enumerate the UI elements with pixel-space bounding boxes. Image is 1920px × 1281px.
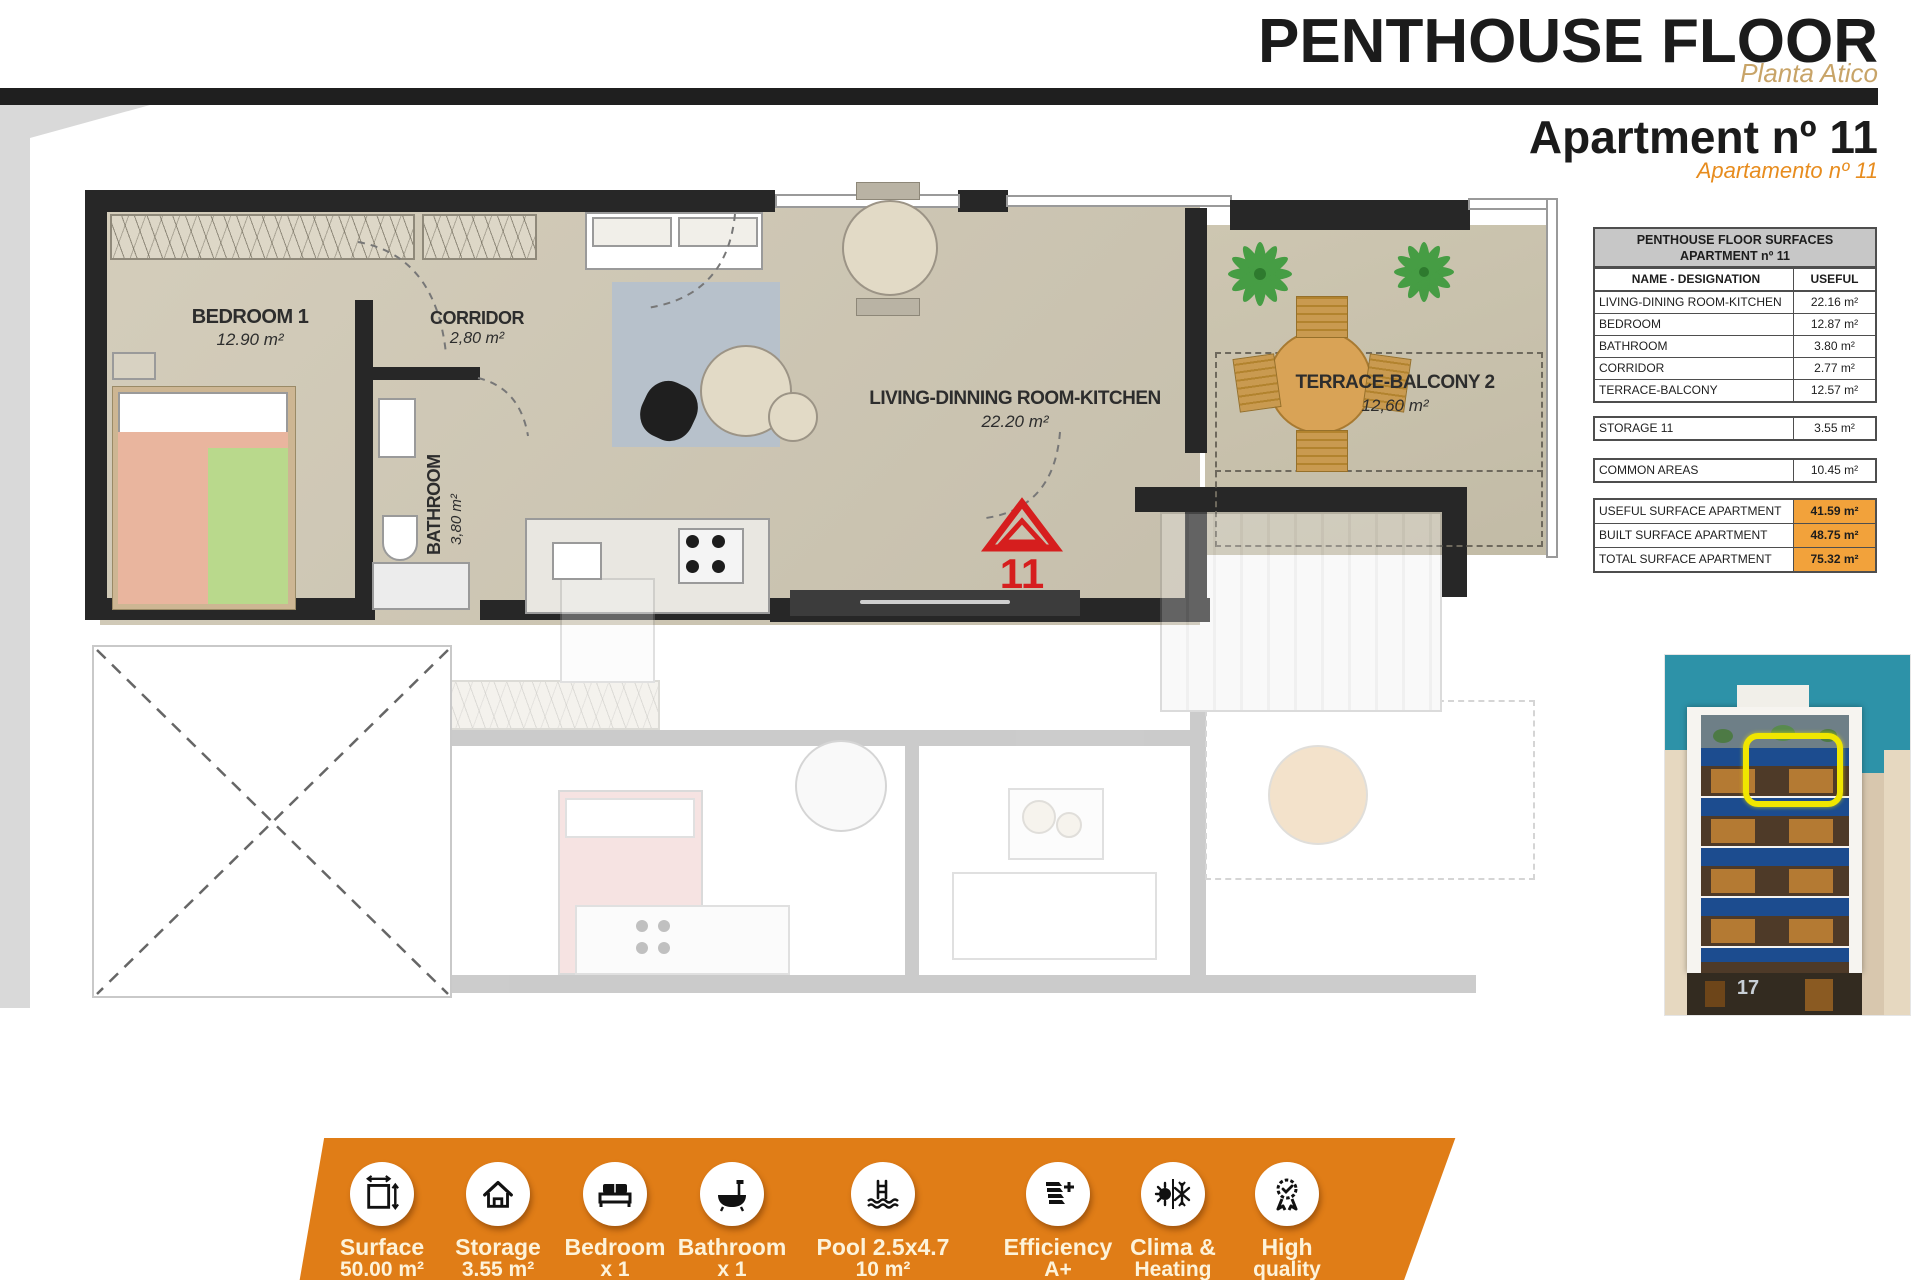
features-banner: Surface 50.00 m² Storage 3.55 m² Bedroom…	[295, 1138, 1460, 1280]
bedroom-icon	[595, 1174, 635, 1214]
building-floor	[1701, 848, 1849, 898]
surface-icon	[363, 1175, 401, 1213]
room-area-terrace: 12,60 m²	[1255, 396, 1535, 416]
surfaces-main-block: PENTHOUSE FLOOR SURFACES APARTMENT nº 11…	[1593, 227, 1877, 403]
room-area-bathroom: 3,80 m²	[448, 415, 465, 545]
page: { "header": { "title": "PENTHOUSE FLOOR"…	[0, 0, 1920, 1280]
room-label-bathroom: BATHROOM	[424, 395, 445, 555]
room-area-living: 22.20 m²	[850, 412, 1180, 432]
penthouse-highlight-box	[1743, 733, 1843, 807]
building-ground-floor	[1687, 973, 1862, 1015]
room-label-terrace: TERRACE-BALCONY 2	[1255, 372, 1535, 394]
storage-block: STORAGE 113.55 m²	[1593, 416, 1877, 441]
pool-icon	[863, 1174, 903, 1214]
table-row: BUILT SURFACE APARTMENT48.75 m²	[1595, 523, 1875, 547]
surfaces-table-title: PENTHOUSE FLOOR SURFACES APARTMENT nº 11	[1595, 229, 1875, 268]
building-elevation-image: 17	[1665, 655, 1910, 1015]
building-floor	[1701, 898, 1849, 948]
table-row: BEDROOM12.87 m²	[1595, 313, 1875, 335]
entrance-marker-number: 11	[982, 550, 1062, 598]
high-quality-icon	[1267, 1174, 1307, 1214]
table-row: COMMON AREAS10.45 m²	[1595, 460, 1875, 481]
table-row: USEFUL SURFACE APARTMENT41.59 m²	[1595, 500, 1875, 523]
lower-floor-ghost	[0, 0, 1920, 1280]
table-row: BATHROOM3.80 m²	[1595, 335, 1875, 357]
table-row: STORAGE 113.55 m²	[1595, 418, 1875, 439]
room-area-corridor: 2,80 m²	[412, 330, 542, 348]
efficiency-icon	[1038, 1174, 1078, 1214]
bathroom-icon	[712, 1174, 752, 1214]
room-label-corridor: CORRIDOR	[412, 308, 542, 329]
building-street-number: 17	[1723, 977, 1773, 1000]
clima-heating-icon	[1153, 1174, 1193, 1214]
room-label-living: LIVING-DINNING ROOM-KITCHEN	[850, 388, 1180, 410]
neighbor-building	[1884, 750, 1910, 1015]
common-areas-block: COMMON AREAS10.45 m²	[1593, 458, 1877, 483]
room-area-bedroom: 12.90 m²	[145, 330, 355, 350]
building-floor	[1701, 948, 1849, 973]
table-row: TOTAL SURFACE APARTMENT75.32 m²	[1595, 547, 1875, 571]
table-row: TERRACE-BALCONY12.57 m²	[1595, 379, 1875, 401]
table-row: LIVING-DINING ROOM-KITCHEN22.16 m²	[1595, 290, 1875, 313]
table-row: CORRIDOR2.77 m²	[1595, 357, 1875, 379]
feature-pool: Pool 2.5x4.7 10 m²	[803, 1162, 963, 1281]
table-header-row: NAME - DESIGNATION USEFUL	[1595, 268, 1875, 290]
surfaces-table: PENTHOUSE FLOOR SURFACES APARTMENT nº 11…	[1593, 227, 1877, 573]
building-rooftop	[1737, 685, 1809, 707]
void-area	[92, 645, 452, 998]
summary-block: USEFUL SURFACE APARTMENT41.59 m² BUILT S…	[1593, 498, 1877, 573]
feature-bathroom: Bathroom x 1	[652, 1162, 812, 1281]
room-label-bedroom: BEDROOM 1	[145, 306, 355, 329]
feature-quality: High quality	[1207, 1162, 1367, 1281]
storage-icon	[479, 1175, 517, 1213]
